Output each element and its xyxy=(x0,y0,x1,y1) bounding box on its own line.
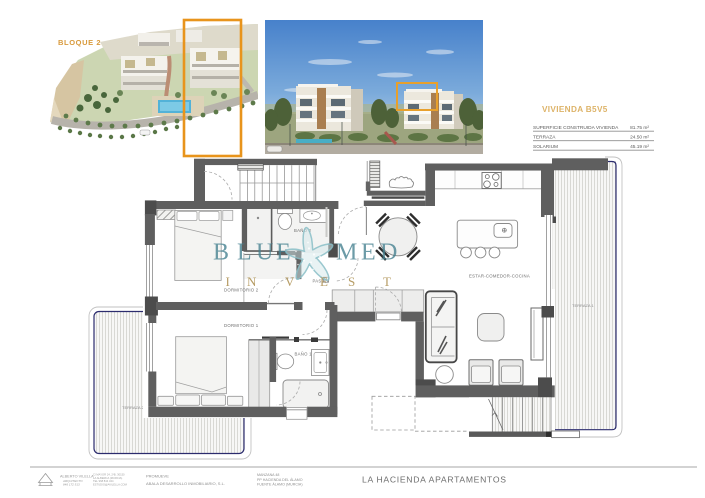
svg-text:ESTAR-COMEDOR-COCINA: ESTAR-COMEDOR-COCINA xyxy=(469,274,530,279)
svg-text:DORMITORIO 1: DORMITORIO 1 xyxy=(224,323,259,328)
svg-text:FUENTE ÁLAMO (MURCIA): FUENTE ÁLAMO (MURCIA) xyxy=(257,483,303,487)
svg-text:T: T xyxy=(383,274,391,289)
svg-text:TERRAZA 2: TERRAZA 2 xyxy=(122,405,145,410)
svg-text:E: E xyxy=(320,274,328,289)
svg-text:MANZANA 48: MANZANA 48 xyxy=(257,473,279,477)
svg-text:M: M xyxy=(336,240,357,266)
svg-text:V: V xyxy=(285,274,295,289)
svg-text:TERRAZA 1: TERRAZA 1 xyxy=(572,303,595,308)
svg-text:VIVIENDA B5V5: VIVIENDA B5V5 xyxy=(542,105,608,114)
svg-text:SUPERFICIE CONSTRUIDA VIVIENDA: SUPERFICIE CONSTRUIDA VIVIENDA xyxy=(533,125,619,131)
svg-text:I: I xyxy=(226,274,230,289)
svg-text:E: E xyxy=(361,240,376,266)
svg-text:ABALA DESARROLLO INMOBILIARIO,: ABALA DESARROLLO INMOBILIARIO, S.L. xyxy=(146,481,225,486)
svg-text:BAÑO 1: BAÑO 1 xyxy=(295,352,313,357)
svg-text:SOLARIUM: SOLARIUM xyxy=(533,144,558,150)
svg-text:PP HACIENDA DEL ÁLAMO: PP HACIENDA DEL ÁLAMO xyxy=(257,478,303,482)
svg-text:B: B xyxy=(213,240,229,266)
svg-text:D: D xyxy=(380,240,397,266)
svg-text:24.50 m²: 24.50 m² xyxy=(630,135,649,141)
svg-text:646 172 513: 646 172 513 xyxy=(63,482,80,486)
svg-text:LA HACIENDA APARTAMENTOS: LA HACIENDA APARTAMENTOS xyxy=(362,475,507,485)
svg-text:BLOQUE 2: BLOQUE 2 xyxy=(58,38,101,47)
svg-text:N: N xyxy=(247,274,257,289)
svg-text:U: U xyxy=(256,240,273,266)
svg-text:L: L xyxy=(237,240,252,266)
svg-text:PROMUEVE: PROMUEVE xyxy=(146,474,169,479)
svg-text:TERRAZA: TERRAZA xyxy=(533,135,556,141)
svg-text:S: S xyxy=(348,274,355,289)
svg-text:45.19 m²: 45.19 m² xyxy=(630,144,649,150)
svg-text:81.75 m²: 81.75 m² xyxy=(630,125,649,131)
svg-text:ESTUDIO@AVILELLA.COM: ESTUDIO@AVILELLA.COM xyxy=(93,482,128,486)
